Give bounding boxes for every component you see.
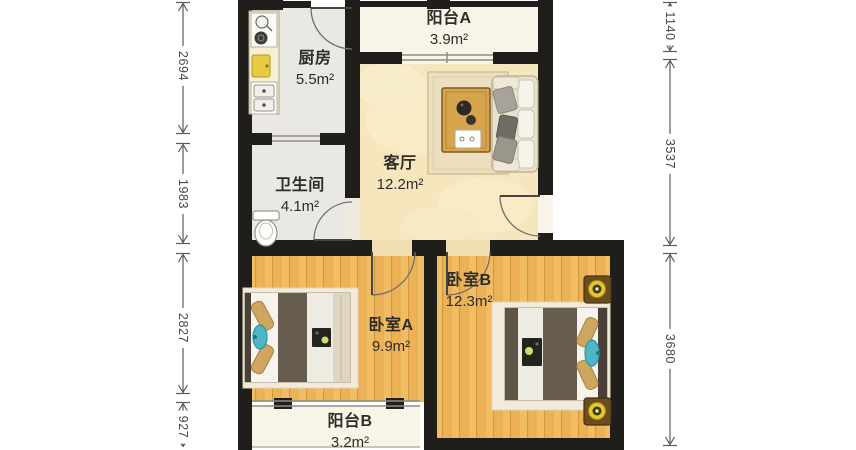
wall-section-right (490, 240, 624, 256)
dim-right-3537 (663, 60, 677, 246)
bed-a (243, 288, 358, 388)
teapot-icon (466, 115, 476, 125)
dim-right-3680 (663, 254, 677, 446)
dim-left-2827 (176, 254, 190, 394)
burner-icon (255, 32, 268, 45)
balcony-a-floor (360, 6, 538, 52)
wall-kitchen-bathroom-right-seg (320, 133, 360, 145)
wall-balcony-b-stub-left (274, 398, 292, 409)
wall-kitchen-bathroom-left (245, 133, 272, 145)
toilet (253, 211, 279, 246)
wall-balcony-a-bottom-left (360, 52, 402, 64)
dim-left-927 (176, 403, 190, 448)
kitchen-counter (249, 11, 279, 114)
wall-right-upper (538, 0, 553, 195)
blanket (278, 293, 307, 382)
floor-plan-drawing (0, 0, 856, 450)
dim-left-1983 (176, 144, 190, 244)
wall-top-balcony-a-stub (427, 0, 450, 9)
headboard (245, 293, 251, 382)
dim-right-1140 (663, 3, 677, 52)
tray (455, 130, 481, 148)
sofa (492, 76, 538, 172)
wall-balcony-a-bottom-right (493, 52, 538, 64)
wall-kitchen-bathroom-right (345, 0, 360, 198)
wall-top-kitchen-stub (249, 0, 283, 10)
blanket (543, 308, 577, 400)
coffee-table (442, 88, 490, 152)
kettle-icon (457, 101, 472, 116)
dim-left-2694 (176, 3, 190, 134)
sink-basin-icon (256, 16, 268, 28)
wall-balcony-b-stub-right (386, 398, 404, 409)
living-room-furniture (428, 72, 538, 174)
wall-bedroom-divider (424, 256, 437, 450)
nightstand-top (584, 276, 611, 303)
wall-section-center-stub (412, 240, 446, 256)
wall-bottom-bedroom-b (424, 438, 624, 450)
tablet (312, 328, 331, 347)
floor-plan: 阳台A 3.9m² 厨房 5.5m² 客厅 12.2m² 卫生间 4.1m² 卧… (0, 0, 856, 450)
nightstand-bottom (584, 398, 611, 425)
wall-right-lower-exterior (610, 240, 624, 450)
balcony-b-floor (252, 406, 420, 448)
